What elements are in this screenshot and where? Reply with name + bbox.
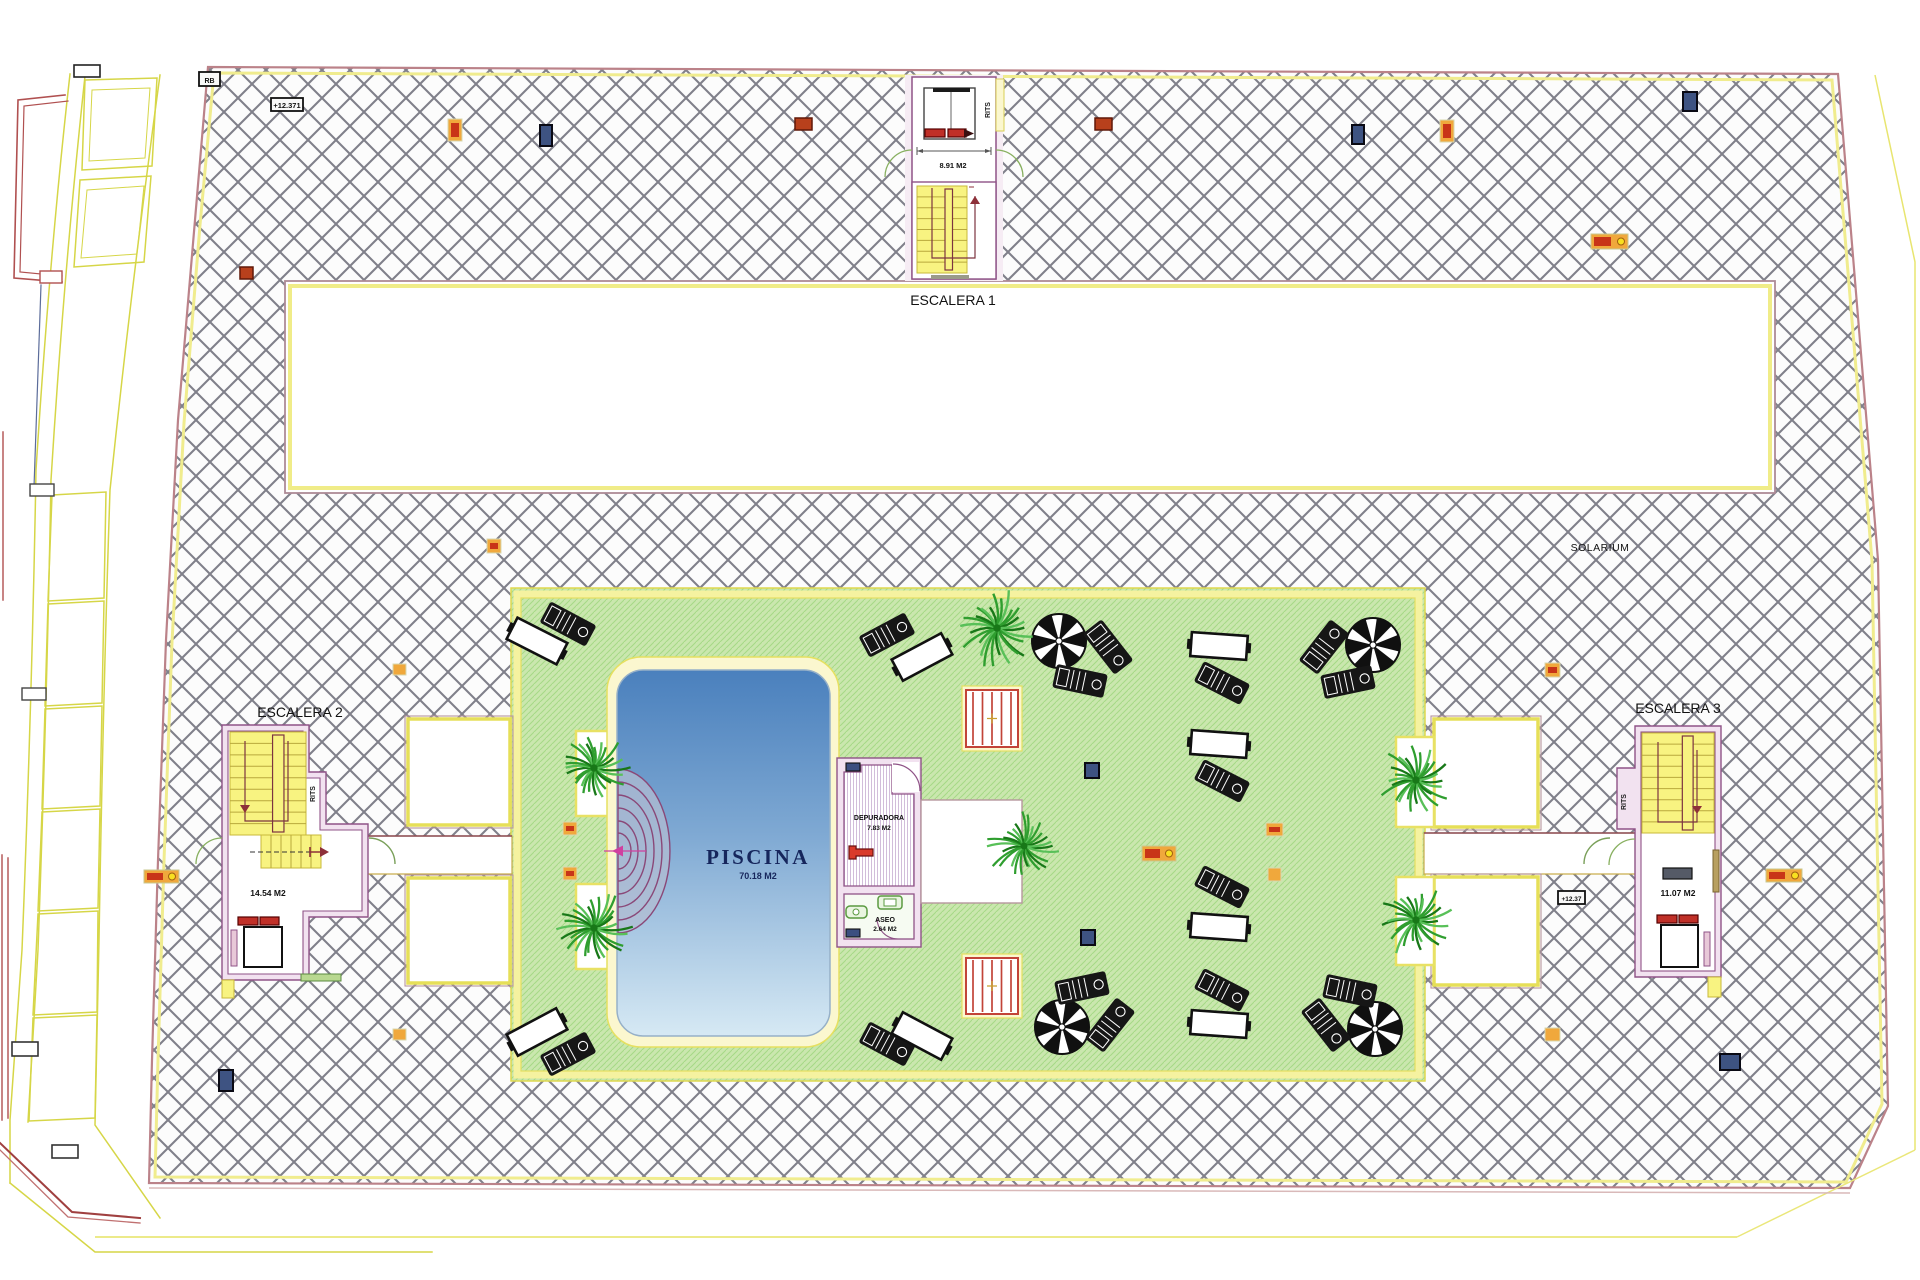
svg-text:70.18 M2: 70.18 M2	[739, 871, 777, 881]
svg-text:SOLARIUM: SOLARIUM	[1571, 542, 1630, 554]
svg-text:8.91 M2: 8.91 M2	[939, 161, 966, 170]
svg-text:+12.371: +12.371	[273, 101, 300, 110]
svg-text:DEPURADORA: DEPURADORA	[854, 815, 904, 822]
svg-text:ASEO: ASEO	[875, 917, 895, 924]
svg-text:RB: RB	[204, 78, 214, 85]
svg-text:ESCALERA 3: ESCALERA 3	[1635, 700, 1721, 716]
svg-text:PISCINA: PISCINA	[706, 845, 810, 869]
svg-text:RITS: RITS	[985, 102, 992, 118]
svg-text:RITS: RITS	[1621, 794, 1628, 810]
svg-text:14.54 M2: 14.54 M2	[250, 888, 286, 898]
svg-text:2.64 M2: 2.64 M2	[873, 926, 897, 933]
svg-text:11.07 M2: 11.07 M2	[1661, 888, 1696, 898]
svg-text:RITS: RITS	[310, 786, 317, 802]
svg-text:ESCALERA 1: ESCALERA 1	[910, 292, 996, 308]
svg-text:+12.37: +12.37	[1561, 896, 1581, 903]
svg-text:7.83 M2: 7.83 M2	[867, 825, 891, 832]
svg-text:ESCALERA 2: ESCALERA 2	[257, 704, 343, 720]
